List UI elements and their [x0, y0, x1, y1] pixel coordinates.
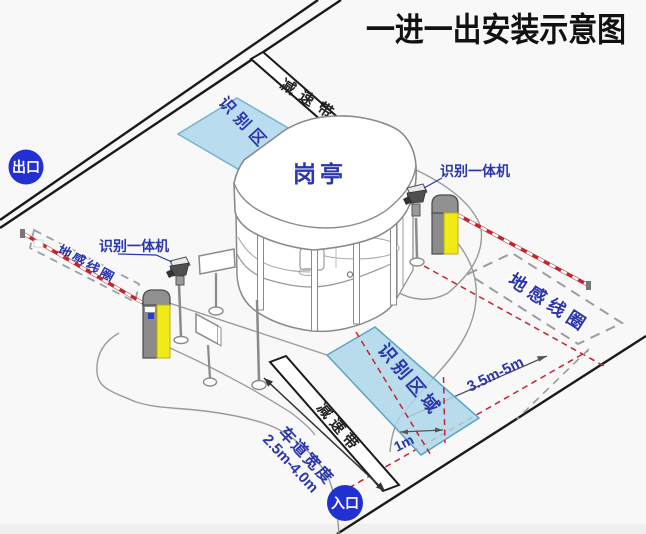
svg-text:识别一体机: 识别一体机: [440, 163, 510, 179]
svg-text:岗亭: 岗亭: [293, 161, 347, 187]
svg-text:一进一出安装示意图: 一进一出安装示意图: [366, 11, 626, 48]
svg-text:识别一体机: 识别一体机: [99, 238, 169, 254]
svg-text:入口: 入口: [331, 495, 359, 511]
svg-text:出口: 出口: [12, 159, 40, 175]
